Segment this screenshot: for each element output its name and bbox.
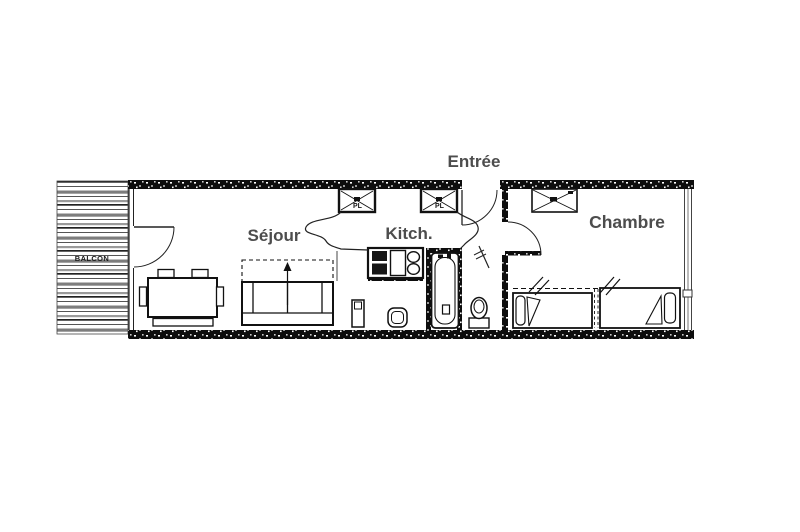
floorplan-canvas: PL PL	[0, 0, 800, 532]
sink-basin-1	[408, 252, 420, 263]
hob-burner-1	[372, 251, 387, 261]
closet-right-label: PL	[435, 203, 445, 210]
closet-left-tick	[354, 197, 360, 201]
sink-basin-2	[408, 264, 420, 275]
bathtub-drain	[443, 305, 450, 314]
worktop	[391, 251, 406, 276]
wall-top-left	[128, 180, 462, 189]
toilet-tank	[469, 318, 489, 328]
wall-bottom	[128, 330, 694, 339]
partition-kitchen-entree	[457, 212, 478, 249]
partition-sejour-kitchen	[305, 212, 368, 250]
hob-burner-2	[372, 264, 387, 275]
balcony-door-arc	[134, 227, 174, 267]
window-connector	[683, 290, 692, 297]
chair-top-1	[158, 270, 174, 278]
wall-chambre-divider-lower	[502, 255, 508, 330]
chambre-door-arc	[508, 222, 541, 255]
label-entree: Entrée	[448, 152, 501, 171]
tap-1	[438, 255, 443, 259]
entrance-door	[462, 190, 497, 225]
closet-right-tick	[436, 197, 442, 201]
chambre-closet-tick-corner	[568, 191, 573, 194]
wall-bath-left	[426, 248, 431, 330]
closet-left-label: PL	[353, 203, 363, 210]
dining-table	[148, 278, 217, 317]
kitchen-unit	[368, 248, 423, 278]
sejour-furniture	[140, 260, 334, 326]
wall-chambre-divider-upper	[502, 189, 508, 222]
kitchen-floor-items	[352, 300, 407, 327]
bed-2-pillow	[665, 293, 676, 323]
wall-top-right	[500, 180, 694, 189]
chair-right	[217, 287, 224, 306]
entrance-door-arc	[462, 190, 497, 225]
bed-1-pillow	[516, 296, 525, 325]
label-chambre: Chambre	[589, 212, 665, 232]
bed-1-slash-1	[529, 277, 543, 292]
label-kitchen: Kitch.	[385, 224, 432, 243]
chambre-door-leaf	[505, 251, 541, 256]
chair-left	[140, 287, 147, 306]
sofa-unfold-arrow-head	[284, 262, 292, 271]
pedestal-unit-top	[355, 302, 362, 309]
label-balcon: BALCON	[75, 254, 109, 263]
stool-basin-inner	[392, 312, 404, 324]
tap-2	[447, 254, 451, 259]
chambre-beds	[513, 277, 680, 328]
bench-bottom	[153, 319, 213, 327]
chambre-closet	[532, 189, 577, 212]
closet-left: PL	[339, 189, 375, 212]
floorplan-svg: PL PL	[0, 0, 800, 532]
chair-top-2	[192, 270, 208, 278]
chambre-closet-tick-center	[550, 197, 557, 202]
right-window	[683, 189, 692, 330]
label-sejour: Séjour	[248, 226, 301, 245]
closet-right: PL	[421, 189, 457, 212]
toilet-bowl-inner	[474, 300, 484, 313]
